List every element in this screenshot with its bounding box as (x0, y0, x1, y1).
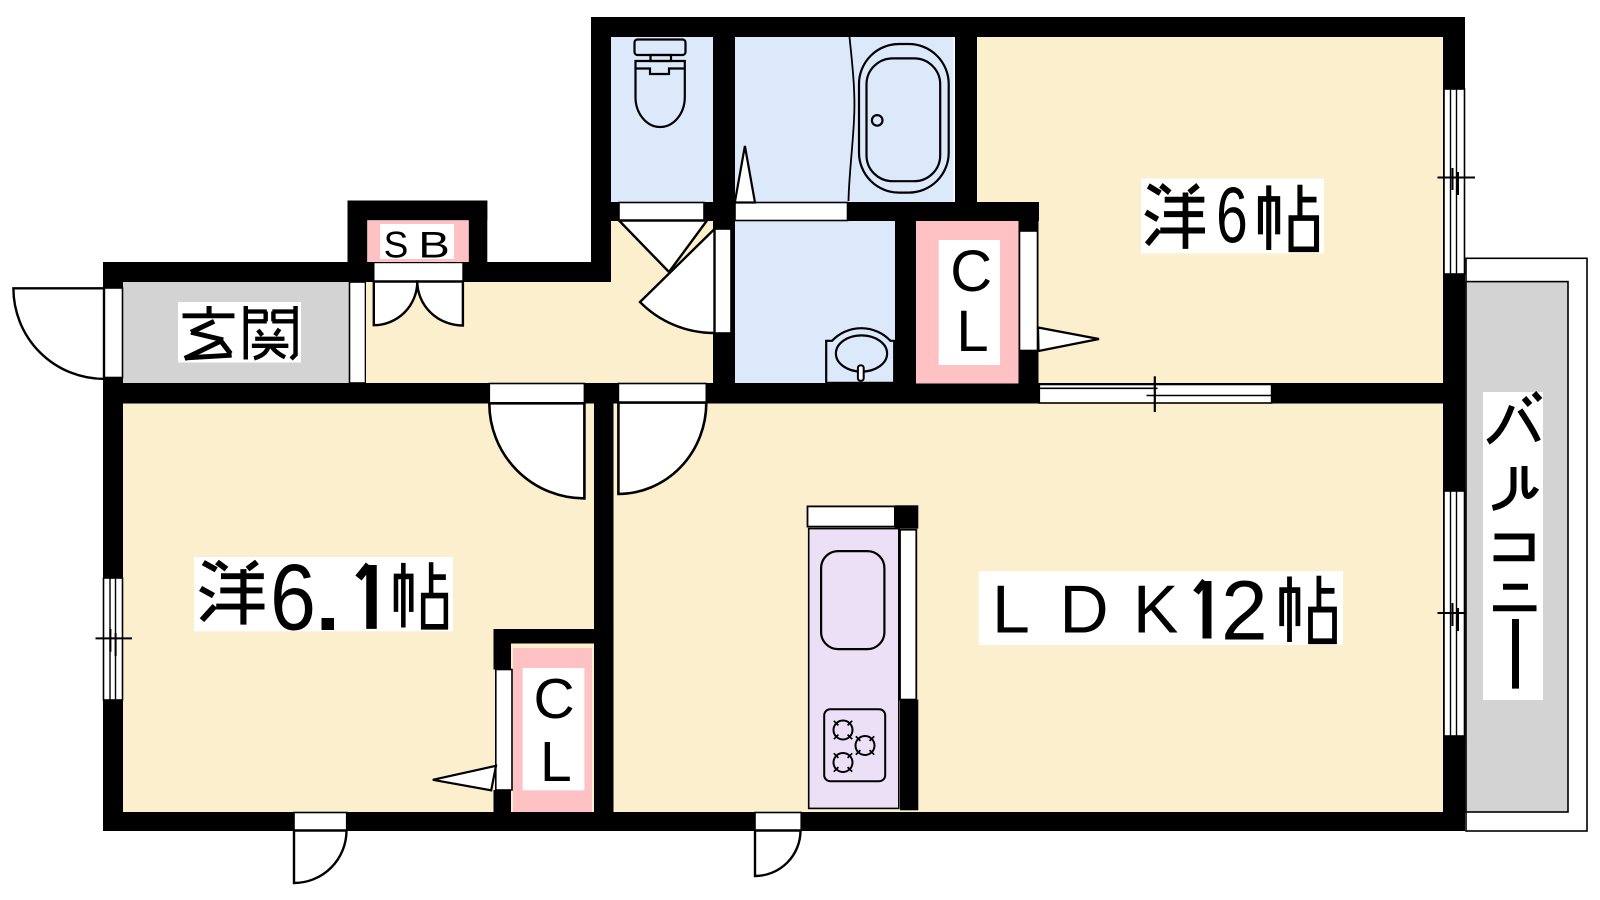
svg-text:B: B (418, 225, 450, 266)
svg-text:6: 6 (1216, 171, 1248, 259)
svg-text:L: L (992, 572, 1030, 648)
svg-text:L: L (540, 730, 572, 794)
svg-text:L: L (956, 299, 988, 364)
svg-text:K: K (1133, 572, 1178, 648)
svg-text:S: S (384, 225, 409, 266)
svg-text:2: 2 (1221, 564, 1268, 658)
svg-text:C: C (950, 239, 992, 304)
svg-text:C: C (534, 667, 575, 731)
svg-text:D: D (1060, 572, 1109, 648)
svg-text:6: 6 (270, 544, 316, 649)
